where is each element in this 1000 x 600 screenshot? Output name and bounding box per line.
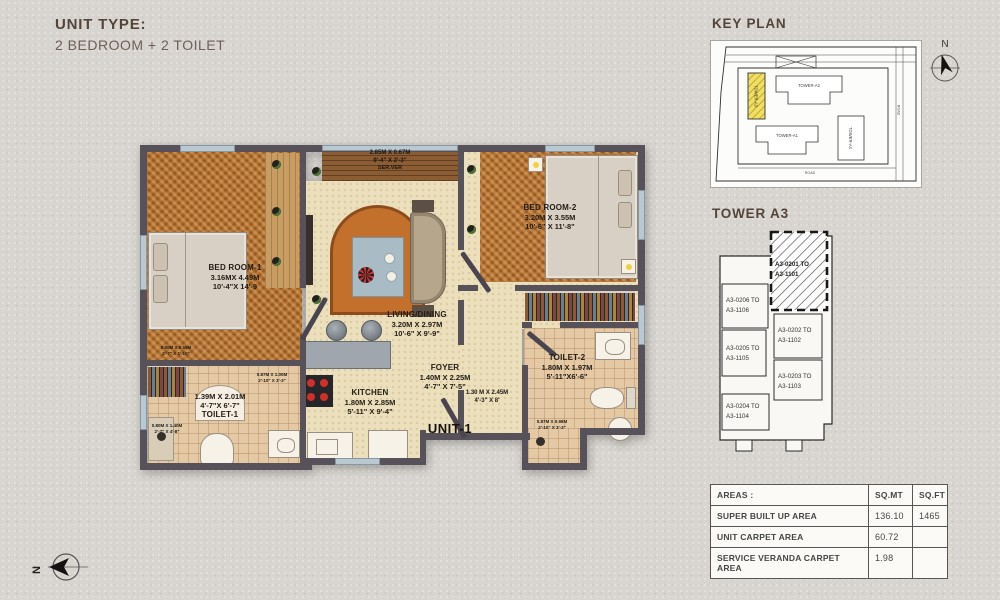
unit-label: A3-0202 TO xyxy=(778,327,812,334)
unit-label: A3-1104 xyxy=(726,413,749,420)
kitchen-counter xyxy=(303,341,391,369)
plan-compass: N xyxy=(26,540,92,590)
room-name: TOILET-1 xyxy=(155,410,285,420)
passage-dim-m: 1.30 M X 2.45M xyxy=(452,390,522,398)
tower-a1-label: TOWER-A1 xyxy=(776,133,799,138)
small-dim-ft: 2'-7" X 4'-8" xyxy=(142,429,192,435)
table-row: SERVICE VERANDA CARPET AREA 1.98 xyxy=(711,547,947,578)
table-row: SUPER BUILT UP AREA 136.10 1465 xyxy=(711,505,947,526)
veranda-dim-ft: 9'-4" X 2'-3" xyxy=(322,157,458,165)
col-areas: AREAS : xyxy=(711,485,868,505)
plant-icon xyxy=(467,165,476,174)
wall-outer-bottom xyxy=(140,463,312,470)
col-sqft: SQ.FT xyxy=(912,485,946,505)
table-row: UNIT CARPET AREA 60.72 xyxy=(711,526,947,547)
plant-icon xyxy=(272,160,281,169)
wall-segment xyxy=(300,148,306,288)
wall-outer-step xyxy=(580,428,587,470)
small-dim-ft: 2'-7" X 1'-10" xyxy=(148,351,204,357)
page-title: UNIT TYPE: xyxy=(55,16,146,33)
north-label: N xyxy=(31,566,43,574)
unit-label: UNIT-1 xyxy=(395,421,505,437)
row-sqmt: 60.72 xyxy=(868,527,912,547)
row-label: SERVICE VERANDA CARPET AREA xyxy=(711,548,868,578)
burner xyxy=(320,379,328,387)
room-name: FOYER xyxy=(390,363,500,373)
kitchen-label: KITCHEN 1.80M X 2.85M 5'-11" X 9'-4" xyxy=(315,388,425,416)
window xyxy=(545,145,595,152)
small-dim-ft: 2'-10" X 3'-3" xyxy=(525,425,579,431)
passage-label: 1.30 M X 2.45M 4'-3" X 8' xyxy=(452,390,522,406)
toilet1-washbasin xyxy=(268,430,300,458)
page-subtitle: 2 BEDROOM + 2 TOILET xyxy=(55,37,225,53)
pillow xyxy=(153,243,168,271)
wall-outer-right xyxy=(638,145,645,435)
room-dim-m: 1.40M X 2.25M xyxy=(390,373,500,382)
veranda-name: SER.VER xyxy=(322,165,458,172)
tower-stub xyxy=(786,440,802,451)
plant-icon xyxy=(467,225,476,234)
room-dim-m: 3.20M X 3.55M xyxy=(490,213,610,222)
wall-segment xyxy=(143,360,303,366)
room-dim-m: 1.80M X 2.85M xyxy=(315,398,425,407)
toilet2-floor-ext xyxy=(528,428,580,463)
nightstand xyxy=(621,259,636,274)
small-dim-ft: 2'-10" X 3'-3" xyxy=(246,378,298,384)
road-label: ROAD xyxy=(805,171,816,175)
sofa xyxy=(410,212,446,304)
room-name: TOILET-2 xyxy=(512,353,622,363)
row-label: SUPER BUILT UP AREA xyxy=(711,506,868,526)
unit-label: A3-0203 TO xyxy=(778,373,812,380)
unit-label-highlight: A3-0201 TO xyxy=(775,261,809,268)
foyer-label: FOYER 1.40M X 2.25M 4'-7" X 7'-5" xyxy=(390,363,500,391)
wall-segment xyxy=(515,285,640,291)
key-plan-title: KEY PLAN xyxy=(712,16,786,31)
key-plan-map: TOWER-A3 TOWER-A2 TOWER-A1 TOWER-A4 ROAD… xyxy=(710,40,922,188)
room-name: BED ROOM-1 xyxy=(175,263,295,273)
room-dim-ft: 4'-7"X 6'-7" xyxy=(155,401,285,410)
row-sqft: 1465 xyxy=(912,506,946,526)
unit-label: A3-0206 TO xyxy=(726,297,760,304)
floor-plan: 2.85M X 0.67M 9'-4" X 2'-3" SER.VER BED … xyxy=(140,145,645,470)
nightstand xyxy=(528,157,543,172)
unit-label: A3-1102 xyxy=(778,337,801,344)
bedroom2-label: BED ROOM-2 3.20M X 3.55M 10'-6" X 11'-8" xyxy=(490,203,610,231)
bedroom1-label: BED ROOM-1 3.16MX 4.49M 10'-4"X 14'-9 xyxy=(175,263,295,291)
unit-label: A3-1106 xyxy=(726,307,749,314)
plant-icon xyxy=(312,167,321,176)
lamp-icon xyxy=(626,264,632,270)
row-label: UNIT CARPET AREA xyxy=(711,527,868,547)
tower-stub xyxy=(736,440,752,451)
wardrobe-2 xyxy=(525,291,635,321)
window xyxy=(140,235,147,290)
lamp-icon xyxy=(533,162,539,168)
window xyxy=(638,305,645,345)
row-sqft xyxy=(912,527,946,547)
unit-label-highlight: A3-1101 xyxy=(775,271,799,278)
dish xyxy=(384,253,395,264)
basin xyxy=(277,438,295,453)
row-sqmt: 1.98 xyxy=(868,548,912,578)
unit-label: A3-1103 xyxy=(778,383,801,390)
room-dim-ft: 10'-4"X 14'-9 xyxy=(175,282,295,291)
room-dim-m: 1.39M X 2.01M xyxy=(155,392,285,401)
key-plan-compass: N xyxy=(926,36,964,90)
room-name: BED ROOM-2 xyxy=(490,203,610,213)
passage-dim-ft: 4'-3" X 8' xyxy=(452,398,522,406)
room-dim-m: 3.16MX 4.49M xyxy=(175,273,295,282)
living-label: LIVING/DINING 3.20M X 2.97M 10'-6" X 9'-… xyxy=(362,310,472,338)
brochure-page: UNIT TYPE: 2 BEDROOM + 2 TOILET xyxy=(0,0,1000,600)
wall-segment xyxy=(458,285,478,291)
tower-a2-label: TOWER-A2 xyxy=(798,83,821,88)
room-dim-ft: 10'-6" X 11'-8" xyxy=(490,222,610,231)
tower-a3-label: TOWER-A3 xyxy=(754,85,759,108)
tower-a3-diagram: A3-0206 TO A3-1106 A3-0205 TO A3-1105 A3… xyxy=(710,226,848,462)
room-name: KITCHEN xyxy=(315,388,425,398)
room-dim-ft: 5'-11" X 9'-4" xyxy=(315,407,425,416)
room-dim-m: 1.80M X 1.97M xyxy=(512,363,622,372)
unit-label: A3-0205 TO xyxy=(726,345,760,352)
tower-a4-label: TOWER-A4 xyxy=(848,127,853,150)
dish xyxy=(386,271,397,282)
road-label: ROAD xyxy=(897,105,901,116)
toilet2-label: TOILET-2 1.80M X 1.97M 5'-11"X6'-6" xyxy=(512,353,622,381)
tower-a3-title: TOWER A3 xyxy=(712,206,789,221)
row-sqft xyxy=(912,548,946,578)
pillow xyxy=(153,275,168,303)
room-name: LIVING/DINING xyxy=(362,310,472,320)
unit-label: A3-1105 xyxy=(726,355,749,362)
wc-tank xyxy=(626,387,636,409)
col-sqmt: SQ.MT xyxy=(868,485,912,505)
coffee-table xyxy=(352,237,404,297)
north-label: N xyxy=(941,39,948,50)
row-sqmt: 136.10 xyxy=(868,506,912,526)
tv-unit xyxy=(306,215,313,285)
side-table xyxy=(412,200,434,212)
small-dim: 0.87M X 1.00M 2'-10" X 3'-3" xyxy=(246,372,298,384)
room-dim-m: 3.20M X 2.97M xyxy=(362,320,472,329)
wall-segment xyxy=(522,365,528,470)
burner xyxy=(307,379,315,387)
veranda-label: 2.85M X 0.67M 9'-4" X 2'-3" SER.VER xyxy=(322,149,458,173)
pillow xyxy=(618,202,632,228)
shower-head-icon xyxy=(536,437,545,446)
veranda-dim-m: 2.85M X 0.67M xyxy=(322,149,458,157)
window xyxy=(638,190,645,240)
wall-segment xyxy=(560,322,640,328)
small-dim: 0.80M X 0.55M 2'-7" X 1'-10" xyxy=(148,345,204,357)
stool xyxy=(326,320,347,341)
unit-label: A3-0204 TO xyxy=(726,403,760,410)
pillow xyxy=(618,170,632,196)
small-dim: 0.87M X 0.98M 2'-10" X 3'-3" xyxy=(525,419,579,431)
small-dim: 0.80M X 1.40M 2'-7" X 4'-8" xyxy=(142,423,192,435)
areas-table: AREAS : SQ.MT SQ.FT SUPER BUILT UP AREA … xyxy=(710,484,948,579)
wall-segment xyxy=(522,322,532,328)
wall-segment xyxy=(300,363,306,470)
wall-segment xyxy=(458,148,464,250)
window xyxy=(335,458,380,465)
window xyxy=(180,145,235,152)
toilet1-wc xyxy=(200,433,234,465)
burner xyxy=(307,393,315,401)
table-header-row: AREAS : SQ.MT SQ.FT xyxy=(711,485,947,505)
plant-icon xyxy=(272,207,281,216)
decor-plate xyxy=(358,267,374,283)
room-dim-ft: 5'-11"X6'-6" xyxy=(512,372,622,381)
toilet2-wc xyxy=(590,387,624,409)
wall-outer-bottom xyxy=(522,463,587,470)
wall-outer-step xyxy=(580,428,645,435)
sink-basin xyxy=(316,439,338,455)
toilet1-label: 1.39M X 2.01M 4'-7"X 6'-7" TOILET-1 xyxy=(155,392,285,420)
room-dim-ft: 10'-6" X 9'-9" xyxy=(362,329,472,338)
